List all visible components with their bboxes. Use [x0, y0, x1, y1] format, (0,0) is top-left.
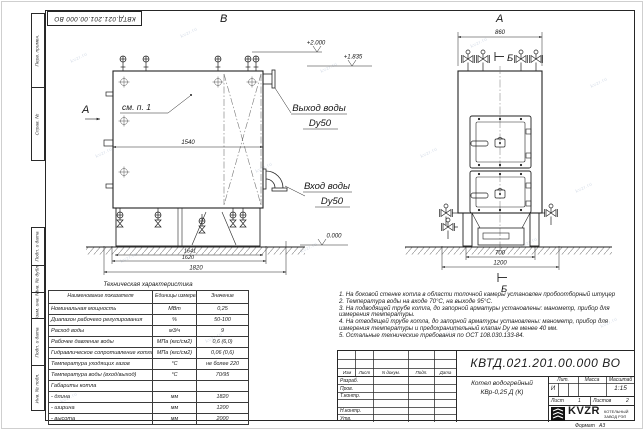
door-handle: [471, 193, 488, 198]
upper-door: [470, 116, 531, 168]
elev-0000-label: 0.000: [326, 234, 342, 240]
drawing-sheet: kvzr.ru kvzr.ru kvzr.ru kvzr.ru kvzr.ru …: [0, 0, 644, 430]
technical-notes: 1. На боковой стенке котла в области топ…: [339, 292, 635, 340]
sign-row-tkontr: Т.контр.: [340, 393, 360, 399]
padlock-icon: [495, 138, 505, 147]
spec-row: Рабочее давление водыМПа (кгс/см2)0,6 (6…: [49, 337, 249, 348]
sign-row-utv: Утв.: [340, 416, 351, 422]
spec-row: - длинамм1820: [49, 392, 249, 403]
section-b-label-top: Б: [507, 53, 513, 64]
rev-col-ndokum: N докум.: [374, 370, 408, 376]
dim-1540-label: 1540: [181, 140, 195, 146]
view-label-a: А: [81, 104, 89, 116]
lit-header: Лит.: [548, 377, 578, 383]
lower-door: [470, 171, 531, 213]
side-fittings: [104, 92, 113, 188]
padlock-icon: [495, 189, 505, 198]
sign-row-nkontr: Н.контр.: [340, 408, 361, 414]
view-label-v: В: [220, 13, 227, 25]
dim-860-label: 860: [495, 30, 506, 36]
format-word: Формат: [575, 423, 595, 429]
spec-header-value: Значение: [197, 291, 249, 304]
spec-header-unit: Единицы измерения: [153, 291, 197, 304]
spec-row: Гидравлическое сопротивление котлаМПа (к…: [49, 348, 249, 359]
door-hinge: [526, 153, 531, 158]
spec-header-row: Наименование показателя Единицы измерени…: [49, 291, 249, 304]
see-note-label: см. п. 1: [122, 102, 151, 112]
door-handle: [471, 141, 488, 146]
side-drain-valves: [440, 204, 558, 239]
top-valves-front: [120, 56, 259, 71]
spec-row: Номинальная мощностьМВт0,25: [49, 304, 249, 315]
rev-col-podp: Подп.: [409, 370, 434, 376]
elev-2000-label: +2.000: [307, 41, 326, 47]
sign-row-razrab: Разраб.: [340, 378, 358, 384]
outlet-label: Выход воды: [292, 103, 345, 114]
base-frame: [116, 208, 260, 246]
spec-row: Расход водым3/ч9: [49, 326, 249, 337]
product-name-line1: Котел водогрейный: [456, 381, 548, 387]
drain-valves: [117, 208, 246, 233]
flue-duct-hidden-lines: [224, 74, 261, 205]
legs-and-ashpan: [463, 213, 539, 246]
product-name-line2: КВр-0,25 Д (К): [456, 390, 548, 396]
mass-header: Масса: [578, 377, 606, 383]
rev-col-izm: Изм: [339, 370, 355, 376]
dim-700-label: 700: [495, 251, 506, 257]
lifting-point-marks: [119, 77, 258, 178]
spec-row: Диапазон рабочего регулирования%50-100: [49, 315, 249, 326]
elev-1835-label: +1.835: [344, 55, 363, 61]
scale-value: 1:15: [606, 386, 635, 392]
title-block: КВТД.021.201.00.000 ВО Изм Лист N докум.…: [337, 350, 635, 421]
ashpan-handle: [483, 233, 509, 239]
sheets-label: Листов: [593, 398, 611, 404]
spec-row: Температура уходящих газов°Сне более 220: [49, 359, 249, 370]
dim-1820-label: 1820: [189, 266, 203, 272]
top-valves-side: [462, 50, 543, 71]
see-note-callout: см. п. 1: [120, 94, 192, 113]
dim-1641-label: 1641: [184, 249, 196, 255]
door-hinge: [526, 183, 531, 188]
water-outlet: Выход воды Dy50: [263, 70, 347, 129]
format-label: Формат А3: [575, 423, 605, 429]
titleblock-doc-number: КВТД.021.201.00.000 ВО: [456, 351, 635, 375]
note-line: 5. Остальные технические требования по О…: [339, 333, 635, 340]
dim-1200-label: 1200: [493, 261, 507, 267]
kvzr-logo-text: KVZR: [568, 408, 600, 414]
spec-row: Температура воды (вход/выход)°С70/95: [49, 370, 249, 381]
section-mark-b-top: Б: [495, 52, 513, 64]
front-view: 1540 Выход воды Dy50 Вхо: [81, 13, 372, 275]
kvzr-logo-icon: [551, 407, 565, 421]
water-inlet: Вход воды Dy50: [263, 169, 352, 207]
side-view: А 860 Б: [405, 13, 612, 295]
lit-value: И: [548, 386, 558, 392]
ground-line-side: [405, 247, 612, 255]
sign-row-prov: Пров.: [340, 386, 353, 392]
kvzr-logo-sub2: ЗАВОД РЭП: [604, 414, 626, 420]
sheet-label: Лист: [551, 398, 564, 404]
spec-table-title: Техническая характеристика: [48, 281, 248, 288]
spec-row: - ширинамм1200: [49, 403, 249, 414]
scale-header: Масштаб: [606, 377, 635, 383]
dim-1540: 1540: [113, 140, 263, 147]
outlet-size-label: Dy50: [309, 118, 332, 129]
door-hinge: [526, 201, 531, 206]
spec-table: Наименование показателя Единицы измерени…: [48, 290, 249, 425]
door-hinge: [526, 129, 531, 134]
spec-header-name: Наименование показателя: [49, 291, 153, 304]
sheets-value: 2: [626, 398, 629, 404]
rev-col-list: Лист: [356, 370, 373, 376]
inlet-size-label: Dy50: [321, 196, 344, 207]
spec-row: Габариты котла: [49, 381, 249, 392]
rev-col-data: Дата: [435, 370, 456, 376]
side-view-label-a: А: [495, 13, 503, 25]
dim-1620-label: 1620: [182, 255, 195, 261]
sheet-value: 1: [578, 398, 581, 404]
spec-row: - высотамм2000: [49, 414, 249, 425]
inlet-label: Вход воды: [304, 181, 350, 192]
format-value: А3: [599, 423, 605, 429]
elevation-marks: +2.000 +1.835 0.000: [252, 41, 372, 246]
